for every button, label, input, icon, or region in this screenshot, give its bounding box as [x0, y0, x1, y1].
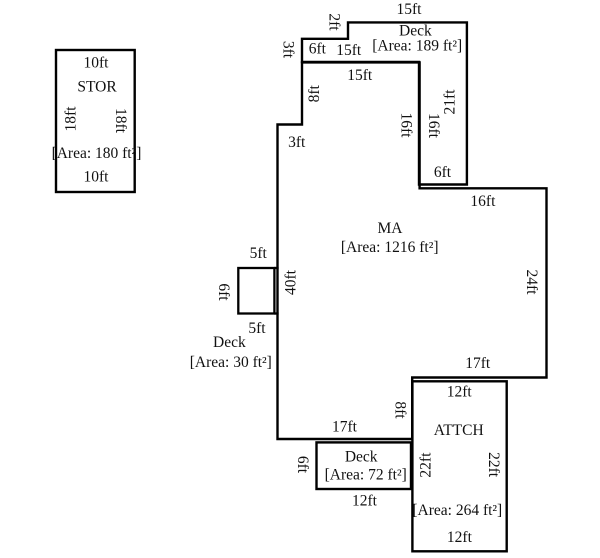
svg-text:[Area: 72 ft²]: [Area: 72 ft²]: [325, 466, 407, 483]
svg-text:[Area: 180 ft²]: [Area: 180 ft²]: [52, 145, 142, 162]
svg-text:22ft: 22ft: [485, 452, 502, 478]
svg-text:10ft: 10ft: [84, 55, 110, 72]
svg-text:16ft: 16ft: [398, 113, 415, 139]
svg-text:[Area: 30 ft²]: [Area: 30 ft²]: [190, 354, 272, 371]
svg-text:16ft: 16ft: [470, 193, 496, 210]
svg-text:12ft: 12ft: [447, 529, 473, 546]
svg-text:5ft: 5ft: [250, 245, 268, 262]
svg-text:6ft: 6ft: [434, 164, 452, 181]
svg-text:Deck: Deck: [213, 334, 246, 351]
svg-text:[Area: 264 ft²]: [Area: 264 ft²]: [412, 502, 502, 519]
svg-text:22ft: 22ft: [418, 452, 435, 478]
svg-text:[Area: 189 ft²]: [Area: 189 ft²]: [372, 38, 462, 55]
svg-text:8ft: 8ft: [392, 401, 409, 419]
svg-text:6ft: 6ft: [215, 283, 232, 301]
svg-text:24ft: 24ft: [523, 270, 540, 296]
svg-text:2ft: 2ft: [326, 13, 343, 31]
svg-text:17ft: 17ft: [465, 355, 491, 372]
svg-text:STOR: STOR: [77, 79, 117, 96]
svg-text:12ft: 12ft: [447, 384, 473, 401]
svg-text:3ft: 3ft: [288, 134, 306, 151]
svg-text:18ft: 18ft: [112, 108, 129, 134]
svg-text:8ft: 8ft: [306, 84, 323, 102]
svg-text:Deck: Deck: [345, 449, 378, 466]
svg-text:5ft: 5ft: [248, 320, 266, 337]
svg-text:MA: MA: [378, 220, 404, 237]
svg-text:18ft: 18ft: [63, 106, 80, 132]
svg-text:ATTCH: ATTCH: [434, 422, 484, 439]
svg-text:10ft: 10ft: [84, 169, 110, 186]
svg-text:6ft: 6ft: [294, 456, 311, 474]
svg-text:6ft: 6ft: [309, 41, 327, 58]
svg-text:15ft: 15ft: [397, 1, 423, 18]
svg-text:12ft: 12ft: [352, 493, 378, 510]
svg-text:15ft: 15ft: [347, 67, 373, 84]
svg-text:16ft: 16ft: [425, 113, 442, 139]
svg-text:17ft: 17ft: [332, 419, 358, 436]
svg-text:40ft: 40ft: [283, 269, 300, 295]
svg-text:21ft: 21ft: [442, 89, 459, 115]
svg-text:15ft: 15ft: [336, 42, 362, 59]
svg-text:3ft: 3ft: [280, 41, 297, 59]
svg-text:[Area: 1216 ft²]: [Area: 1216 ft²]: [341, 239, 439, 256]
